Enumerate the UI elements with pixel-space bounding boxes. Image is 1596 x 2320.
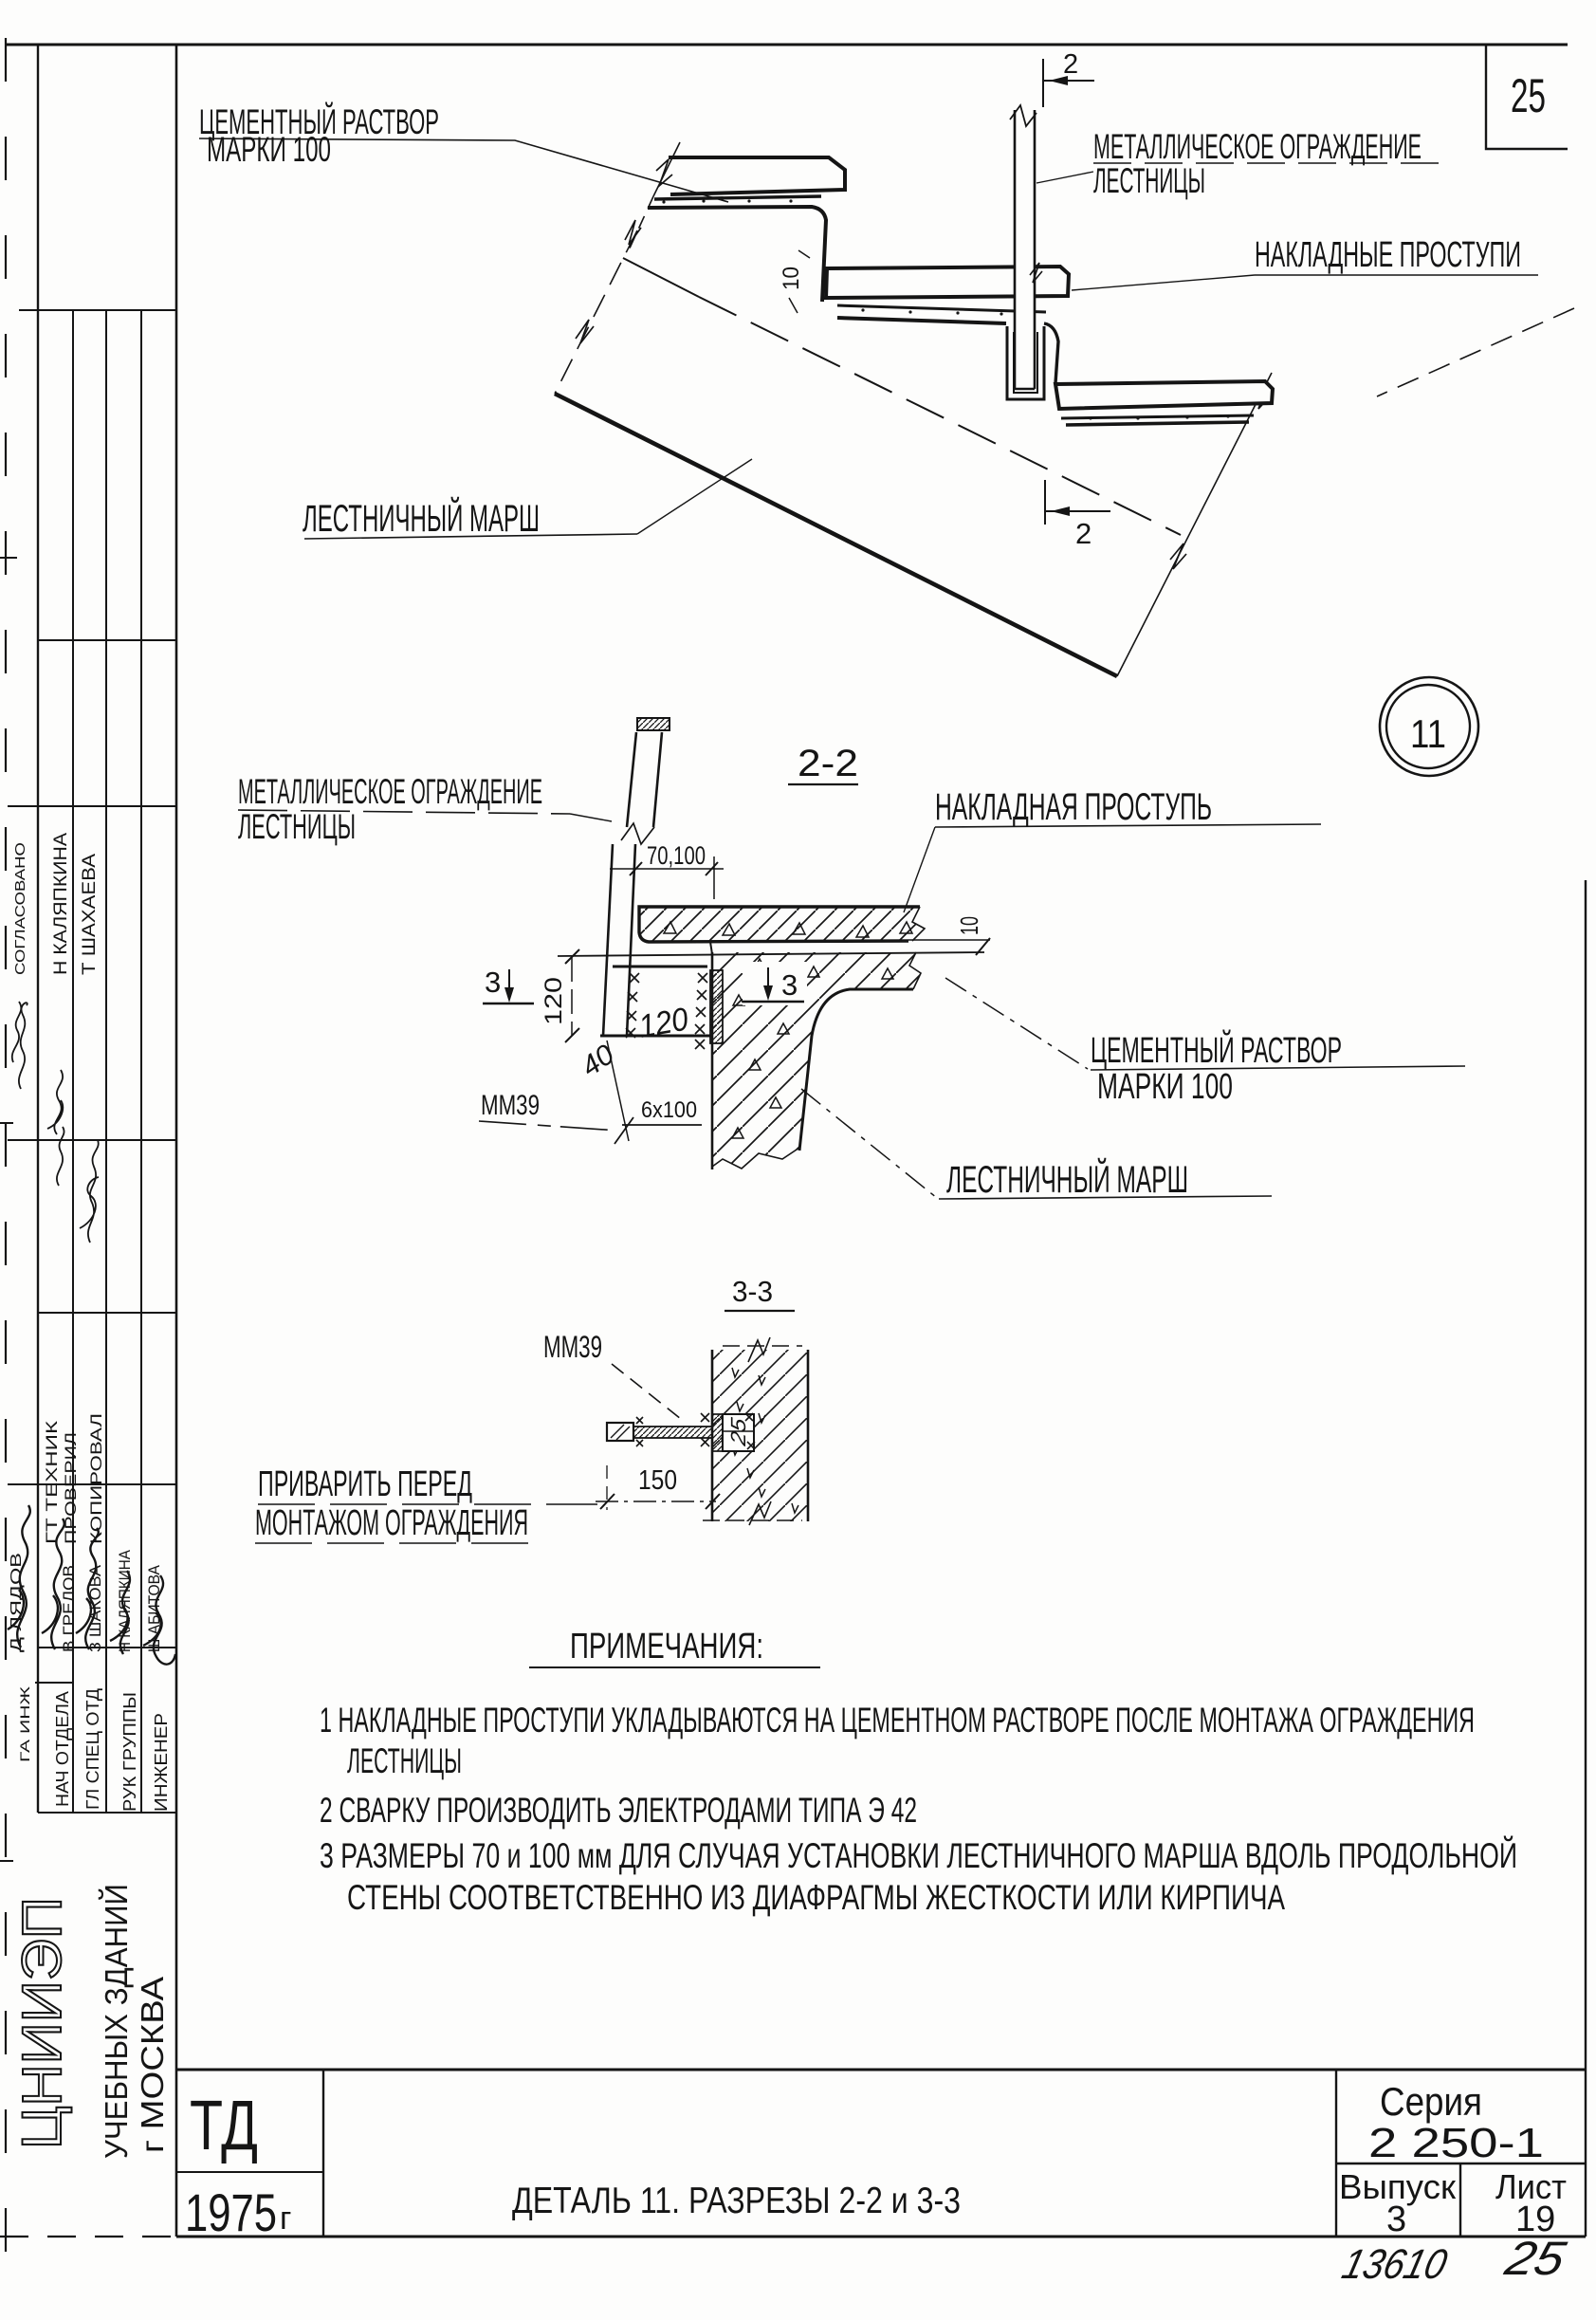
svg-text:УЧЕБНЫХ ЗДАНИЙ: УЧЕБНЫХ ЗДАНИЙ <box>99 1884 134 2159</box>
svg-text:120: 120 <box>541 977 567 1025</box>
svg-text:ЛЕСТНИЦЫ: ЛЕСТНИЦЫ <box>1093 161 1205 200</box>
svg-text:МАРКИ 100: МАРКИ 100 <box>207 130 331 169</box>
svg-text:1 НАКЛАДНЫЕ ПРОСТУПИ УКЛАДЫВАЮ: 1 НАКЛАДНЫЕ ПРОСТУПИ УКЛАДЫВАЮТСЯ НА ЦЕМ… <box>320 1701 1475 1740</box>
svg-text:НАКЛАДНАЯ ПРОСТУПЬ: НАКЛАДНАЯ ПРОСТУПЬ <box>935 786 1212 828</box>
svg-text:25: 25 <box>1499 2232 1571 2285</box>
svg-text:ГЛ СПЕЦ ОТД: ГЛ СПЕЦ ОТД <box>83 1688 102 1810</box>
svg-text:2: 2 <box>1063 49 1078 80</box>
svg-text:120: 120 <box>636 1001 691 1044</box>
svg-text:ЦЕМЕНТНЫЙ РАСТВОР: ЦЕМЕНТНЫЙ РАСТВОР <box>1091 1028 1342 1071</box>
svg-text:РУК ГРУППЫ: РУК ГРУППЫ <box>120 1692 139 1812</box>
svg-text:Н КАЛЯПКИНА: Н КАЛЯПКИНА <box>51 833 71 975</box>
svg-text:10: 10 <box>779 267 804 290</box>
svg-text:г МОСКВА: г МОСКВА <box>135 1977 170 2153</box>
svg-text:СТЕНЫ СООТВЕТСТВЕННО ИЗ ДИАФРА: СТЕНЫ СООТВЕТСТВЕННО ИЗ ДИАФРАГМЫ ЖЕСТКО… <box>347 1878 1285 1917</box>
svg-text:2 250-1: 2 250-1 <box>1368 2120 1544 2166</box>
svg-text:В ГРЕЛОВ: В ГРЕЛОВ <box>60 1565 78 1652</box>
svg-text:ММ39: ММ39 <box>481 1090 540 1121</box>
svg-text:1975: 1975 <box>185 2182 277 2242</box>
svg-text:150: 150 <box>638 1465 677 1496</box>
svg-text:МОНТАЖОМ ОГРАЖДЕНИЯ: МОНТАЖОМ ОГРАЖДЕНИЯ <box>255 1503 528 1543</box>
svg-text:40: 40 <box>576 1039 620 1083</box>
svg-text:25: 25 <box>1511 69 1546 122</box>
svg-text:Т ШАХАЕВА: Т ШАХАЕВА <box>80 854 100 975</box>
svg-text:МЕТАЛЛИЧЕСКОЕ ОГРАЖДЕНИЕ: МЕТАЛЛИЧЕСКОЕ ОГРАЖДЕНИЕ <box>1093 127 1422 166</box>
svg-text:3: 3 <box>1386 2200 1406 2239</box>
svg-text:6х100: 6х100 <box>641 1097 697 1123</box>
svg-text:ЛЕСТНИЦЫ: ЛЕСТНИЦЫ <box>238 807 356 846</box>
svg-text:2: 2 <box>1075 517 1092 550</box>
svg-text:СОГЛАСОВАНО: СОГЛАСОВАНО <box>12 842 28 975</box>
svg-text:ИНЖЕНЕР: ИНЖЕНЕР <box>152 1713 171 1812</box>
svg-text:НАКЛАДНЫЕ ПРОСТУПИ: НАКЛАДНЫЕ ПРОСТУПИ <box>1255 235 1521 275</box>
svg-text:3 РАЗМЕРЫ 70 и 100 мм ДЛЯ СЛУЧ: 3 РАЗМЕРЫ 70 и 100 мм ДЛЯ СЛУЧАЯ УСТАНОВ… <box>320 1835 1517 1875</box>
svg-text:ЛЕСТНИЧНЫЙ МАРШ: ЛЕСТНИЧНЫЙ МАРШ <box>303 496 540 540</box>
svg-text:ПРИМЕЧАНИЯ:: ПРИМЕЧАНИЯ: <box>570 1627 763 1666</box>
svg-text:10: 10 <box>955 916 983 935</box>
svg-text:г: г <box>280 2200 291 2237</box>
svg-text:70,100: 70,100 <box>647 841 706 870</box>
svg-text:ЦНИИЭП: ЦНИИЭП <box>11 1897 73 2149</box>
svg-text:КОПИРОВАЛ: КОПИРОВАЛ <box>87 1413 105 1544</box>
svg-text:ДЕТАЛЬ 11. РАЗРЕЗЫ 2-2 и: ДЕТАЛЬ 11. РАЗРЕЗЫ 2-2 и 3-3 <box>512 2181 961 2221</box>
svg-text:3-3: 3-3 <box>732 1275 773 1308</box>
svg-text:2-2: 2-2 <box>798 743 858 784</box>
svg-text:ТД: ТД <box>190 2086 258 2164</box>
svg-text:13610: 13610 <box>1338 2242 1452 2288</box>
svg-text:11: 11 <box>1410 711 1446 756</box>
svg-text:ГА ИНЖ: ГА ИНЖ <box>17 1686 32 1762</box>
svg-text:МАРКИ 100: МАРКИ 100 <box>1097 1067 1233 1107</box>
svg-text:ЛЕСТНИЦЫ: ЛЕСТНИЦЫ <box>347 1741 462 1780</box>
svg-text:3: 3 <box>781 968 798 1002</box>
svg-text:ПРИВАРИТЬ ПЕРЕД: ПРИВАРИТЬ ПЕРЕД <box>258 1464 472 1504</box>
svg-text:ЛЕСТНИЧНЫЙ МАРШ: ЛЕСТНИЧНЫЙ МАРШ <box>946 1157 1188 1201</box>
svg-text:2 СВАРКУ ПРОИЗВОДИТЬ ЭЛЕКТРОДА: 2 СВАРКУ ПРОИЗВОДИТЬ ЭЛЕКТРОДАМИ ТИПА Э … <box>320 1791 917 1830</box>
svg-text:ММ39: ММ39 <box>543 1330 602 1364</box>
svg-text:Серия: Серия <box>1380 2079 1482 2124</box>
svg-text:ГТ ТЕХНИК: ГТ ТЕХНИК <box>43 1421 61 1544</box>
svg-text:НАЧ ОТДЕЛА: НАЧ ОТДЕЛА <box>53 1691 72 1807</box>
svg-text:МЕТАЛЛИЧЕСКОЕ ОГРАЖДЕНИЕ: МЕТАЛЛИЧЕСКОЕ ОГРАЖДЕНИЕ <box>238 772 542 811</box>
svg-text:3: 3 <box>485 966 501 999</box>
